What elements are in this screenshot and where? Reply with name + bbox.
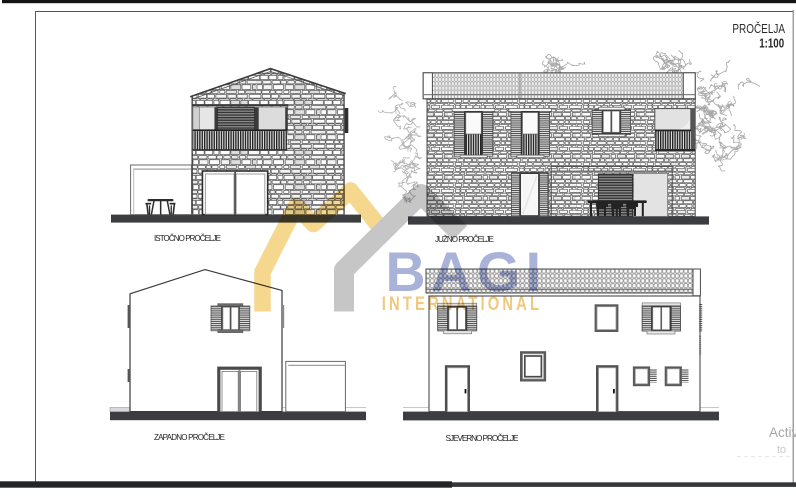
- svg-text:ZAPADNO PROČELJE: ZAPADNO PROČELJE: [154, 433, 225, 442]
- svg-text:to: to: [777, 444, 786, 456]
- svg-text:SJEVERNO PROČELJE: SJEVERNO PROČELJE: [446, 433, 520, 443]
- svg-text:Activate: Activate: [769, 425, 796, 440]
- svg-text:PROČELJA: PROČELJA: [732, 22, 785, 37]
- svg-text:INTERNATIONAL: INTERNATIONAL: [382, 293, 542, 314]
- svg-text:ISTOČNO PROČELJE: ISTOČNO PROČELJE: [154, 234, 221, 243]
- svg-text:1:100: 1:100: [759, 37, 784, 51]
